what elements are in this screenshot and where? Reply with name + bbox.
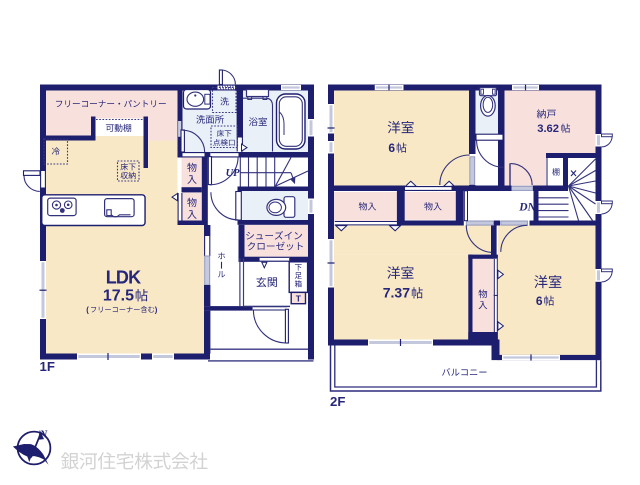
svg-text:UP: UP	[226, 168, 241, 179]
svg-text:(: (	[86, 305, 89, 314]
svg-text:6: 6	[536, 294, 543, 308]
svg-text:1F: 1F	[40, 359, 55, 374]
svg-text:DN: DN	[518, 202, 536, 214]
svg-text:2F: 2F	[330, 394, 345, 409]
svg-text:7.37: 7.37	[383, 285, 410, 301]
svg-text:6: 6	[388, 141, 395, 155]
svg-text:): )	[155, 305, 158, 314]
svg-text:17.5: 17.5	[103, 287, 134, 304]
svg-text:3.62: 3.62	[537, 123, 559, 135]
svg-text:LDK: LDK	[106, 268, 141, 288]
svg-text:N: N	[39, 429, 48, 440]
svg-text:T: T	[296, 294, 302, 304]
